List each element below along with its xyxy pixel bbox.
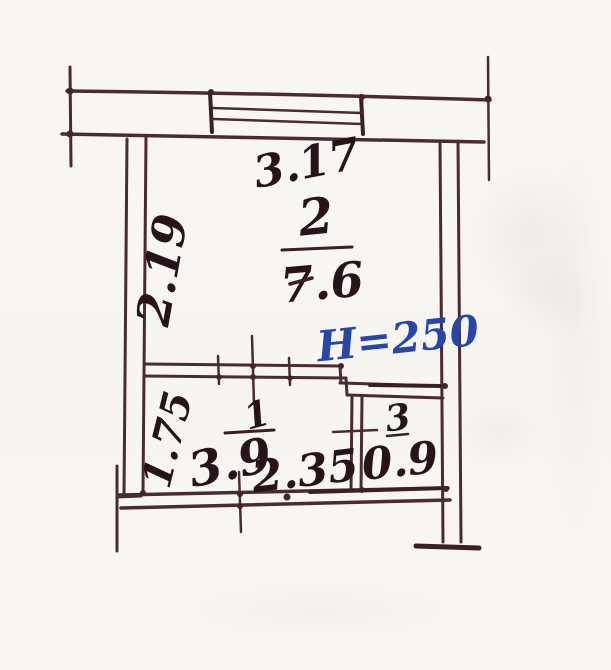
room2-number-label: 2 bbox=[294, 185, 336, 247]
right-wall-foot bbox=[416, 546, 479, 548]
room2-fraction-line bbox=[282, 247, 352, 250]
dim-extension-left bbox=[70, 67, 71, 166]
window-symbol bbox=[210, 92, 363, 134]
dimension-left-upper-label: 2.19 bbox=[126, 210, 199, 331]
room3-number-label: 3 bbox=[383, 395, 414, 440]
room3-area-label: 0.9 bbox=[359, 432, 440, 491]
ceiling-height-note: H=250 bbox=[313, 306, 481, 372]
scanned-paper-background: 3.17 2.19 2 7.6 H=250 1.75 1 3.9 2.35 3 … bbox=[0, 0, 611, 670]
dim-tick bbox=[218, 356, 219, 384]
dim-tick bbox=[289, 358, 290, 385]
dim-extension-right bbox=[488, 57, 489, 180]
dim-tick-horizontal bbox=[333, 430, 377, 432]
floor-plan-sketch: 3.17 2.19 2 7.6 H=250 1.75 1 3.9 2.35 3 … bbox=[0, 0, 611, 670]
